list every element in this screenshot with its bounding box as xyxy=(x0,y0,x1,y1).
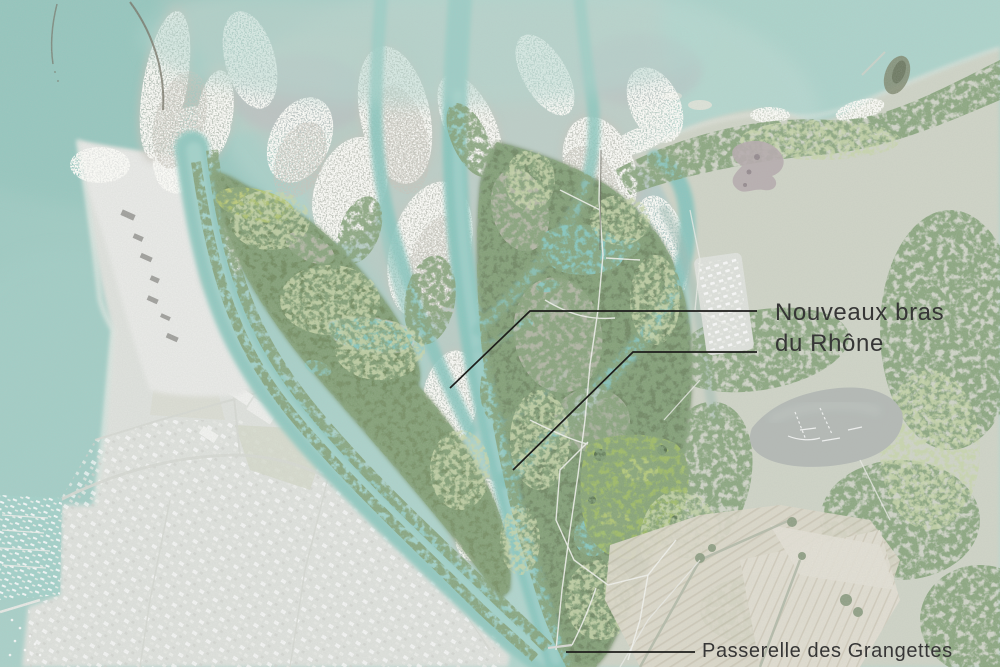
annotation-new-rhone-branches-line2: du Rhône xyxy=(775,330,884,357)
annotation-grangettes-footbridge: Passerelle des Grangettes xyxy=(702,639,953,663)
annotation-new-rhone-branches: Nouveaux bras du Rhône xyxy=(775,297,944,359)
aerial-map-figure: Nouveaux bras du Rhône Passerelle des Gr… xyxy=(0,0,1000,667)
annotation-new-rhone-branches-line1: Nouveaux bras xyxy=(775,299,944,326)
annotation-grangettes-footbridge-label: Passerelle des Grangettes xyxy=(702,640,953,662)
